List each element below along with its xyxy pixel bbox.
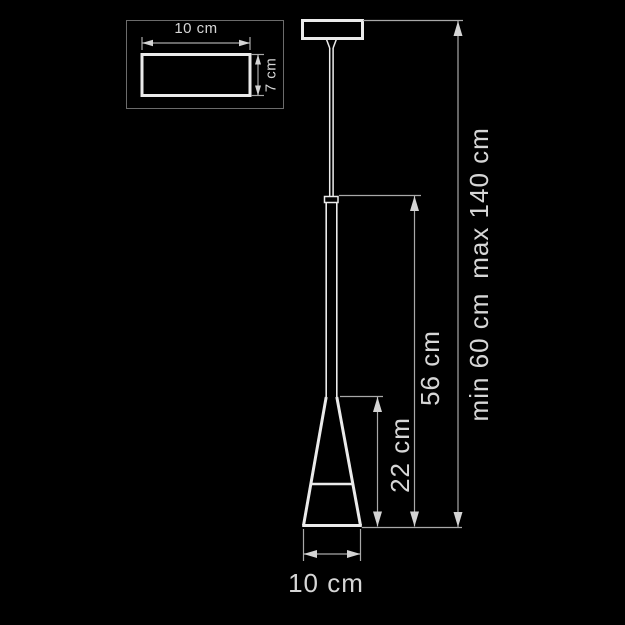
- strain-relief: [333, 40, 336, 49]
- shade-height-label: 22 cm: [385, 417, 415, 493]
- arrowhead-right-icon: [239, 40, 250, 46]
- canopy-top-view-rect: [142, 55, 250, 96]
- arrowhead-up-icon: [373, 397, 382, 412]
- arrowhead-up-icon: [410, 196, 419, 211]
- arrowhead-left-icon: [142, 40, 153, 46]
- cone-shade-left-wall: [304, 397, 327, 526]
- arrowhead-up-icon: [454, 21, 463, 36]
- pendant-lamp: [302, 21, 362, 526]
- diagram-canvas: 10 cm 7 cm: [0, 0, 625, 625]
- fixture-height-label: 56 cm: [415, 330, 445, 406]
- arrowhead-down-icon: [410, 512, 419, 527]
- overall-height-dimension: min 60 cm max 140 cm: [362, 21, 494, 528]
- overall-min-label: min 60 cm: [464, 293, 494, 422]
- shade-diameter-dimension: 10 cm: [288, 529, 364, 598]
- pendant-lamp-technical-drawing: 10 cm 7 cm: [0, 0, 625, 625]
- shade-height-dimension: 22 cm: [340, 397, 415, 527]
- inset-panel: 10 cm 7 cm: [127, 20, 284, 109]
- cone-shade-right-wall: [337, 397, 361, 526]
- arrowhead-up-icon: [255, 55, 261, 65]
- shade-diameter-label: 10 cm: [288, 568, 364, 598]
- arrowhead-right-icon: [347, 550, 361, 558]
- arrowhead-left-icon: [304, 550, 318, 558]
- cord-collar: [325, 197, 339, 203]
- arrowhead-down-icon: [255, 86, 261, 96]
- strain-relief: [327, 40, 330, 49]
- arrowhead-down-icon: [454, 512, 463, 527]
- inset-width-label: 10 cm: [174, 20, 217, 37]
- overall-max-label: max 140 cm: [464, 127, 494, 279]
- arrowhead-down-icon: [373, 512, 382, 527]
- inset-height-label: 7 cm: [263, 58, 280, 93]
- ceiling-canopy: [303, 21, 363, 39]
- inset-width-dimension: 10 cm: [142, 20, 250, 50]
- inset-height-dimension: 7 cm: [251, 55, 280, 96]
